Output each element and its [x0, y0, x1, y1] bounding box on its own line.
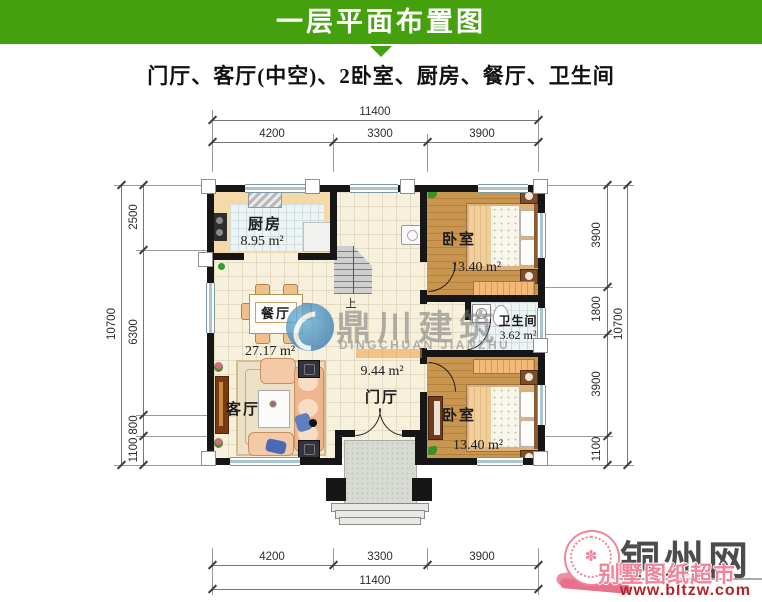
porch-column: [326, 478, 346, 501]
window: [206, 283, 215, 333]
column-marker: [533, 451, 548, 466]
dimension-line: [212, 565, 539, 566]
bedroom-bottom-label: 卧室: [432, 404, 486, 425]
window: [230, 457, 300, 466]
porch-step: [339, 517, 421, 525]
dim-left-seg2: 6300: [128, 302, 140, 362]
kitchen-label: 厨房: [235, 213, 295, 234]
dim-right-seg2: 1800: [591, 279, 603, 339]
wall: [420, 185, 427, 262]
dim-top-overall: 11400: [345, 106, 405, 118]
extension-line: [136, 436, 207, 437]
extension-line: [114, 185, 207, 186]
window: [537, 385, 546, 425]
column-marker: [533, 179, 548, 194]
plant-icon: [214, 438, 223, 448]
watermark-bar: [356, 349, 422, 358]
dimension-line: [212, 120, 539, 121]
decor-dot: [309, 419, 317, 427]
dim-bottom-seg2: 3300: [350, 551, 410, 563]
watermark-logo: [286, 303, 334, 351]
dim-right-seg1: 3900: [591, 205, 603, 265]
stair-rail: [353, 246, 354, 294]
water-heater-icon: [401, 225, 422, 245]
header-bar: 一层平面布置图: [0, 0, 762, 44]
extension-line: [545, 465, 634, 466]
dimension-line: [121, 185, 122, 465]
side-table: [298, 360, 320, 378]
dimension-line: [627, 185, 628, 465]
entry-porch: [344, 440, 417, 504]
dimension-line: [143, 185, 144, 465]
window: [478, 184, 528, 193]
dim-bottom-seg1: 4200: [242, 551, 302, 563]
column-marker: [305, 179, 320, 194]
plant-icon: [428, 446, 437, 455]
range-hood-icon: [248, 192, 282, 208]
dim-top-seg1: 4200: [242, 128, 302, 140]
foyer-label: 门厅: [352, 386, 412, 407]
dim-left-overall: 10700: [106, 294, 118, 354]
wall: [330, 185, 337, 260]
column-marker: [201, 451, 216, 466]
dim-right-overall: 10700: [613, 294, 625, 354]
side-table: [298, 440, 320, 458]
bedroom-top-label: 卧室: [432, 228, 486, 249]
extension-line: [136, 415, 207, 416]
dim-top-seg3: 3900: [452, 128, 512, 140]
column-marker: [198, 252, 213, 267]
dresser: [473, 281, 535, 296]
plant-icon: [214, 362, 223, 372]
extension-line: [136, 250, 207, 251]
dimension-line: [212, 589, 539, 590]
plant-icon: [218, 263, 225, 270]
bedroom-bottom-area: 13.40 m²: [446, 438, 510, 454]
site-tagline: 别墅图纸超市: [598, 557, 736, 589]
foyer-area: 9.44 m²: [352, 364, 412, 380]
dim-bottom-seg3: 3900: [452, 551, 512, 563]
window: [245, 184, 305, 193]
kitchen-area: 8.95 m²: [232, 234, 292, 250]
dining-area: 27.17 m²: [238, 344, 302, 360]
dimension-line: [212, 142, 539, 143]
wall: [298, 253, 337, 260]
extension-line: [545, 185, 634, 186]
dim-top-seg2: 3300: [350, 128, 410, 140]
dim-right-seg4: 1100: [591, 419, 603, 479]
nightstand: [520, 370, 538, 385]
living-label: 客厅: [218, 398, 268, 419]
bedroom-top-area: 13.40 m²: [444, 260, 508, 276]
column-marker: [201, 179, 216, 194]
wall: [214, 253, 244, 260]
armchair: [260, 358, 296, 384]
column-marker: [400, 179, 415, 194]
header-pointer: [370, 46, 392, 57]
floor-plan-page: 一层平面布置图 门厅、客厅(中空)、2卧室、厨房、餐厅、卫生间 11400 42…: [0, 0, 762, 602]
window: [350, 184, 398, 193]
dim-right-seg3: 3900: [591, 354, 603, 414]
dimension-line: [607, 185, 608, 465]
wall: [335, 430, 342, 465]
porch-column: [412, 478, 432, 501]
page-title: 一层平面布置图: [0, 0, 762, 44]
room-summary: 门厅、客厅(中空)、2卧室、厨房、餐厅、卫生间: [0, 60, 762, 90]
window: [477, 457, 523, 466]
wall: [420, 392, 427, 458]
dim-left-seg1: 2500: [128, 187, 140, 247]
kitchen-counter: [303, 222, 331, 252]
window: [537, 213, 546, 258]
dim-left-seg4: 1100: [128, 420, 140, 480]
stove-icon: [213, 213, 227, 241]
dim-bottom-overall: 11400: [345, 575, 405, 587]
